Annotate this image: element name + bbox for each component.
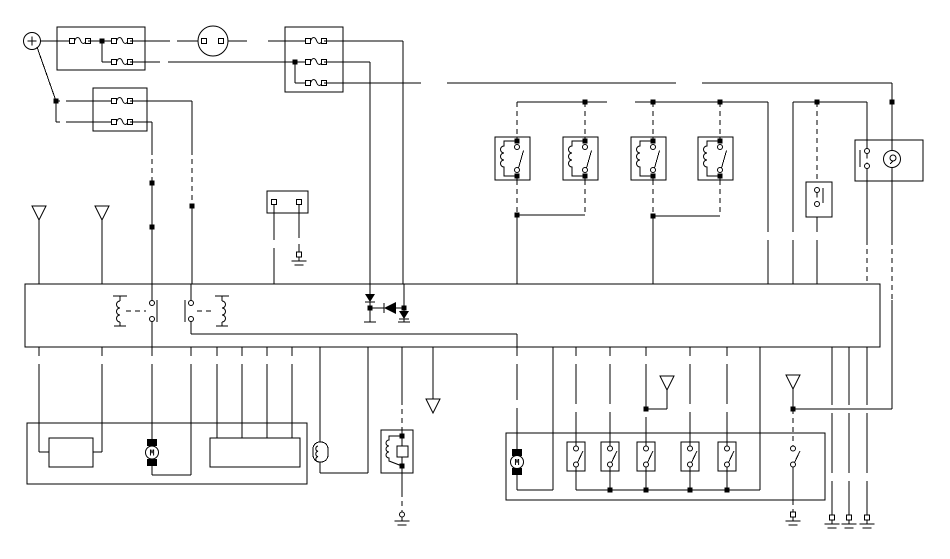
contact bbox=[791, 462, 796, 467]
motor-terminal bbox=[147, 439, 157, 446]
fuse-icon bbox=[306, 59, 327, 65]
motor-right: M bbox=[511, 449, 524, 475]
ground-icon bbox=[786, 512, 801, 525]
junction-dot bbox=[608, 488, 613, 493]
switch-5 bbox=[718, 442, 736, 471]
switch-lamp-unit bbox=[793, 140, 923, 409]
junction-dot bbox=[688, 488, 693, 493]
contact bbox=[150, 317, 155, 322]
coil-icon bbox=[117, 301, 120, 322]
contact bbox=[865, 164, 870, 169]
terminal bbox=[297, 200, 302, 205]
relay-return-wires bbox=[515, 180, 721, 284]
main-control-unit bbox=[25, 284, 880, 347]
power-feed-wires bbox=[150, 41, 895, 284]
fuse-box-1 bbox=[57, 27, 170, 70]
terminal bbox=[272, 200, 277, 205]
relay-3 bbox=[631, 137, 666, 180]
wiring-diagram: M M bbox=[0, 0, 950, 554]
connector-arrow-icon bbox=[660, 376, 674, 390]
lamp-filament bbox=[890, 161, 893, 164]
fuse-icon bbox=[112, 119, 133, 125]
motor-left: M bbox=[146, 439, 159, 466]
coil-icon bbox=[316, 446, 318, 462]
junction-dot bbox=[890, 100, 895, 105]
valve-element bbox=[397, 446, 408, 457]
sub-module-1 bbox=[49, 438, 93, 467]
component-box bbox=[855, 140, 923, 181]
wire bbox=[37, 47, 56, 101]
ground-icon bbox=[825, 515, 840, 528]
diode-icon bbox=[399, 311, 409, 319]
connector-arrow-icon bbox=[95, 206, 109, 220]
sub-module-2 bbox=[210, 438, 300, 467]
ground-columns bbox=[825, 347, 875, 528]
ground-icon bbox=[860, 515, 875, 528]
connector-arrow-icon bbox=[32, 206, 46, 220]
connector-dot bbox=[150, 225, 155, 230]
diode-icon bbox=[384, 302, 396, 314]
fuse-box bbox=[93, 88, 147, 131]
battery bbox=[24, 33, 59, 104]
diode-icon bbox=[365, 294, 375, 302]
relay-1 bbox=[495, 137, 530, 180]
schematic-canvas: M M bbox=[0, 0, 950, 554]
motor-terminal bbox=[147, 459, 157, 466]
lamp-icon bbox=[884, 151, 901, 168]
fuse-icon bbox=[112, 98, 133, 104]
terminal bbox=[219, 39, 224, 44]
junction-dot bbox=[644, 488, 649, 493]
fuse-icon bbox=[112, 59, 133, 65]
fuse-icon bbox=[112, 38, 133, 44]
lamp-filament bbox=[890, 155, 896, 161]
motor-terminal bbox=[512, 468, 522, 475]
coil-sensor bbox=[313, 347, 368, 473]
connector-triangle-3 bbox=[426, 347, 440, 413]
relay-4 bbox=[698, 137, 733, 180]
motor-label: M bbox=[150, 449, 155, 458]
switch-blade bbox=[795, 451, 801, 463]
diode-network bbox=[364, 284, 410, 322]
fuse-icon bbox=[306, 80, 327, 86]
solenoid-valve bbox=[381, 347, 413, 525]
thermo-switch bbox=[806, 182, 832, 284]
ground-icon bbox=[292, 252, 307, 265]
ignition-switch bbox=[177, 26, 285, 56]
connector-arrow-icon bbox=[426, 399, 440, 413]
motor-terminal bbox=[512, 449, 522, 456]
right-assembly: M bbox=[506, 375, 825, 525]
relay-bus bbox=[517, 100, 867, 285]
terminal bbox=[202, 39, 207, 44]
coil-icon bbox=[386, 436, 402, 466]
fuse-icon bbox=[70, 38, 91, 44]
contact bbox=[815, 202, 820, 207]
contact bbox=[189, 301, 194, 306]
junction-dot bbox=[725, 488, 730, 493]
control-unit-band bbox=[25, 284, 880, 347]
fuse-box-2 bbox=[56, 88, 192, 131]
switch-4 bbox=[681, 442, 699, 471]
connector-triangle-2 bbox=[95, 206, 109, 284]
contact bbox=[189, 317, 194, 322]
connector-arrow-icon bbox=[786, 375, 800, 389]
switch-6 bbox=[786, 375, 801, 525]
fuse-icon bbox=[306, 38, 327, 44]
relay-2 bbox=[563, 137, 598, 180]
contact bbox=[815, 188, 820, 193]
contact bbox=[865, 149, 870, 154]
component-box bbox=[806, 182, 832, 217]
switch-3 bbox=[637, 442, 655, 471]
internal-relay-a bbox=[113, 284, 157, 347]
contact bbox=[150, 301, 155, 306]
sensor-connector bbox=[267, 191, 308, 284]
switch-1 bbox=[567, 442, 585, 471]
contact bbox=[791, 446, 796, 451]
ground-icon bbox=[842, 515, 857, 528]
switch-2 bbox=[601, 442, 619, 471]
band-output-wires-right bbox=[517, 347, 760, 490]
internal-relay-b bbox=[185, 284, 229, 334]
coil-icon bbox=[222, 301, 226, 322]
sensor-body bbox=[313, 442, 328, 462]
ground-icon bbox=[395, 512, 410, 525]
connector-triangle-1 bbox=[32, 206, 46, 284]
fuse-box-3 bbox=[168, 27, 343, 92]
motor-label: M bbox=[515, 458, 520, 467]
band-output-wires-left bbox=[39, 347, 292, 475]
